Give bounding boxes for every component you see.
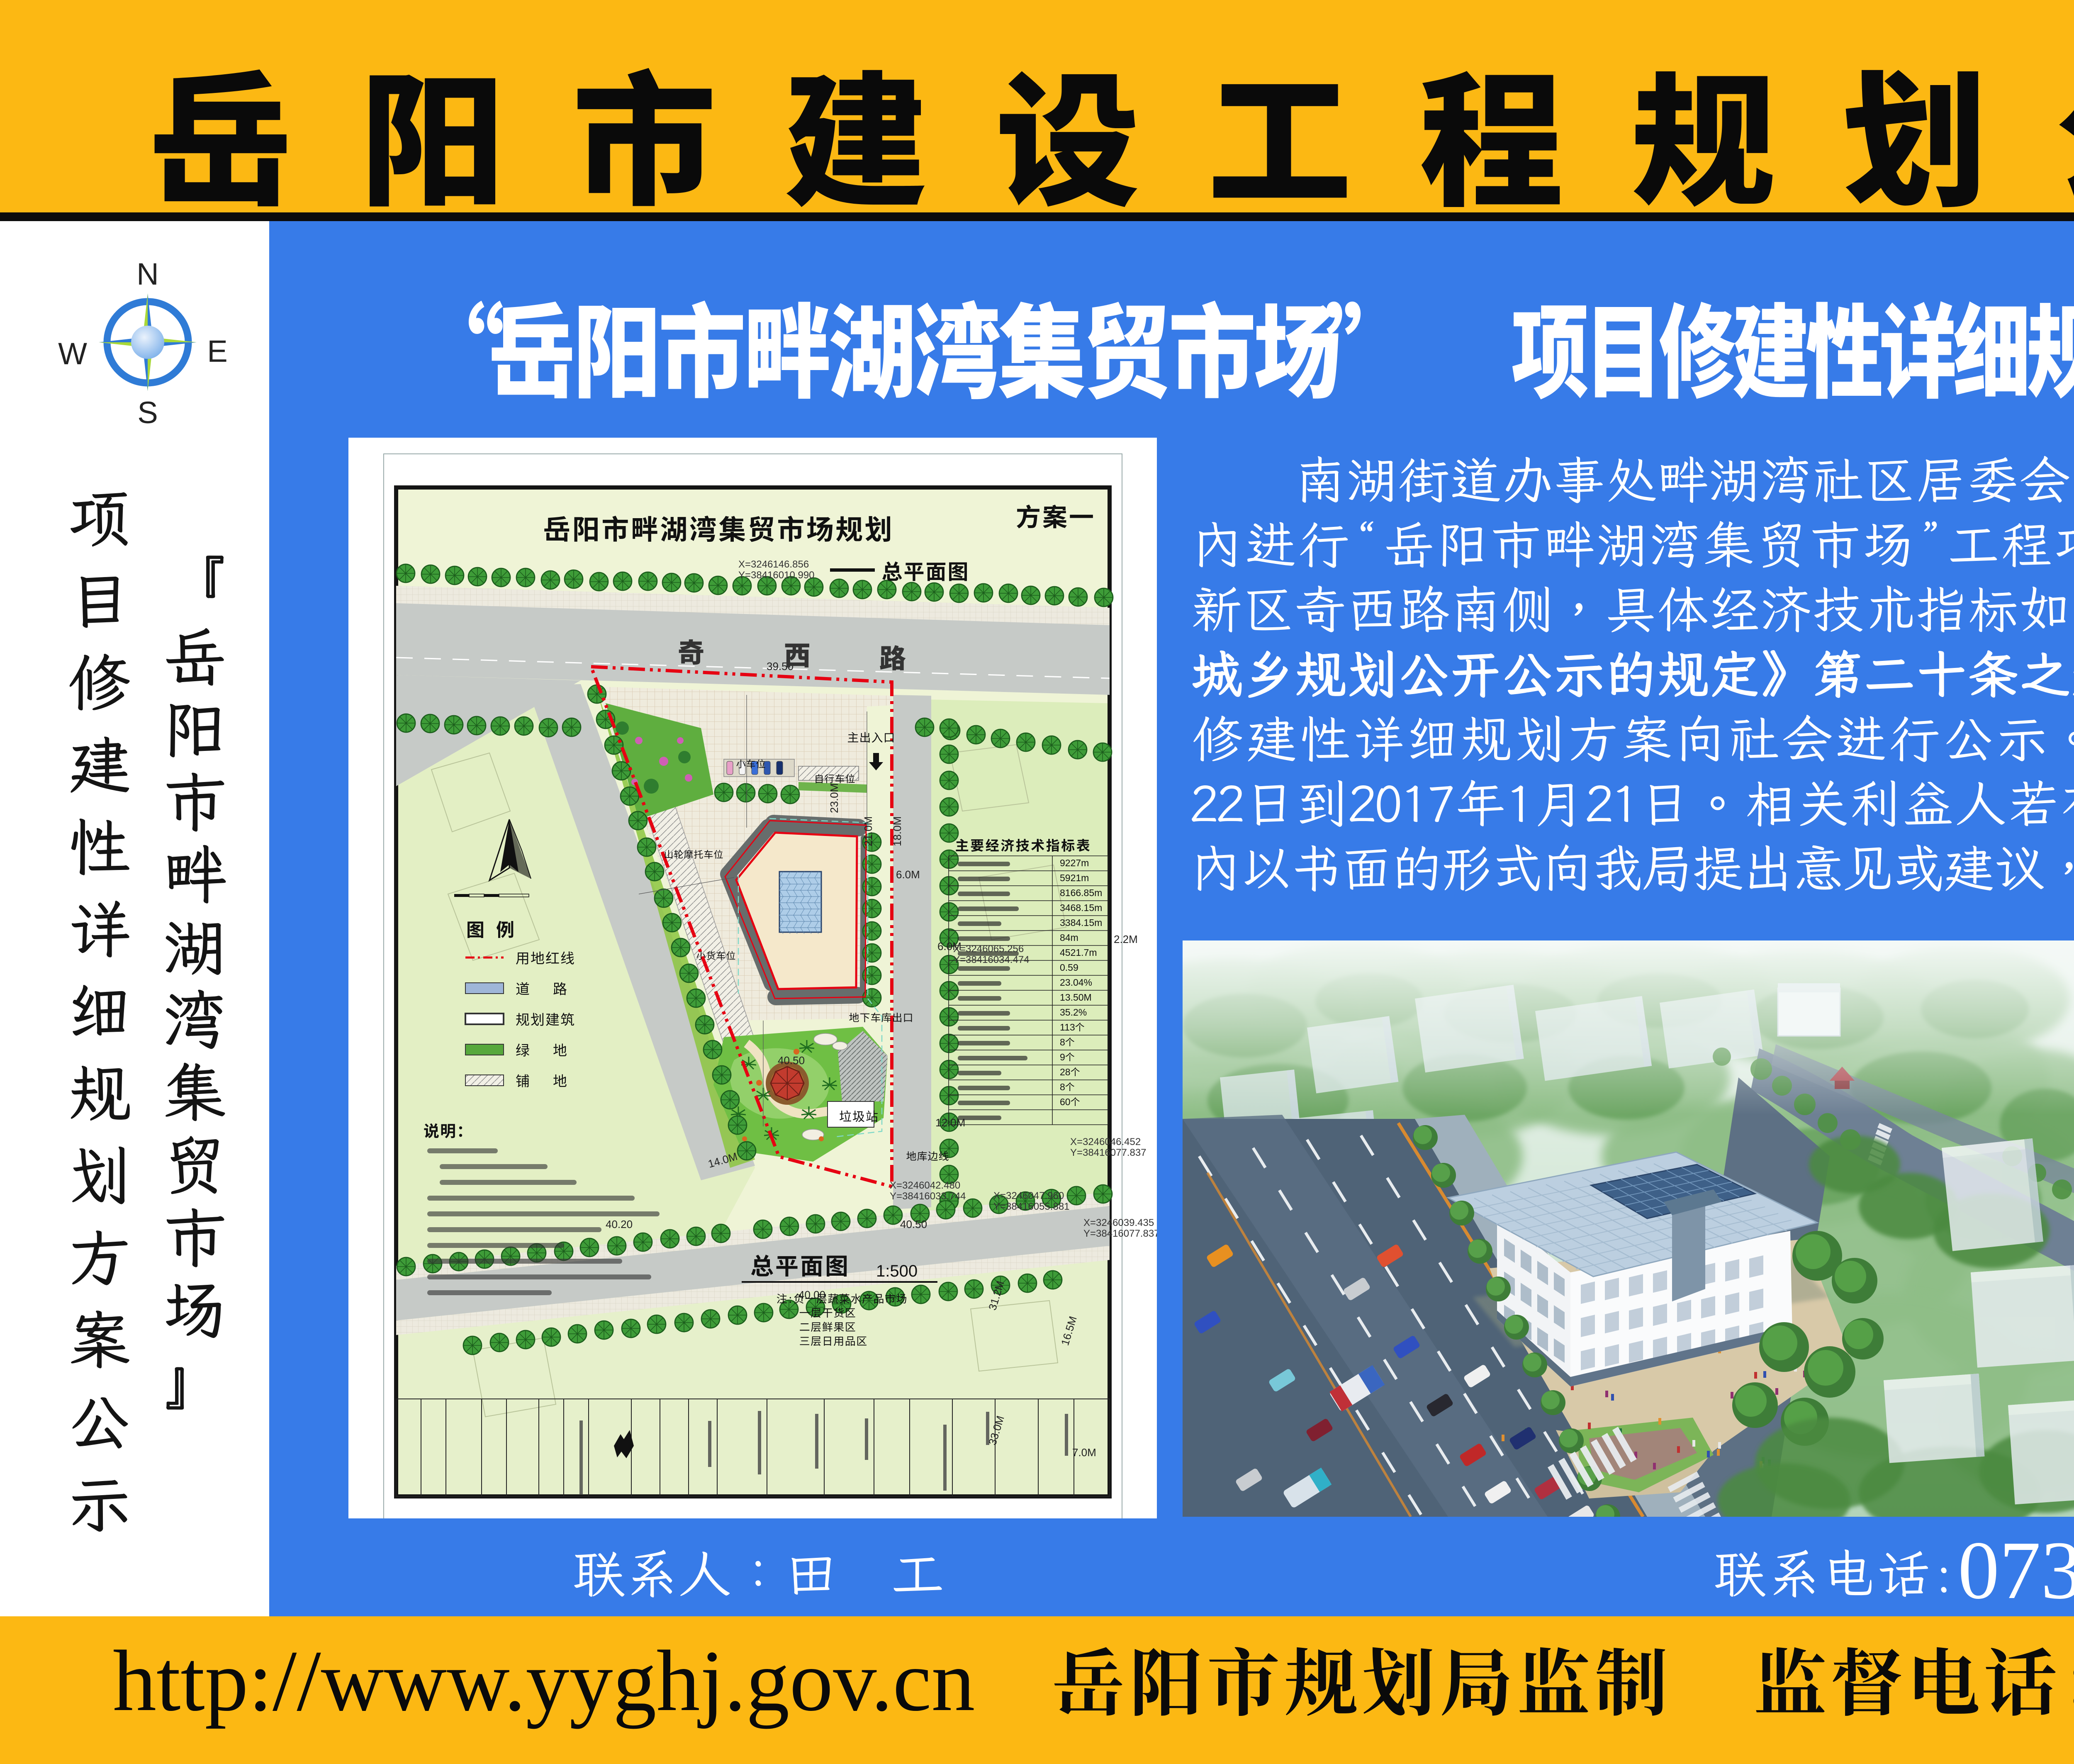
svg-text:0730-8856929: 0730-8856929 (1958, 1525, 2074, 1616)
svg-text:http://www.yyghj.gov.cn: http://www.yyghj.gov.cn (113, 1633, 975, 1729)
